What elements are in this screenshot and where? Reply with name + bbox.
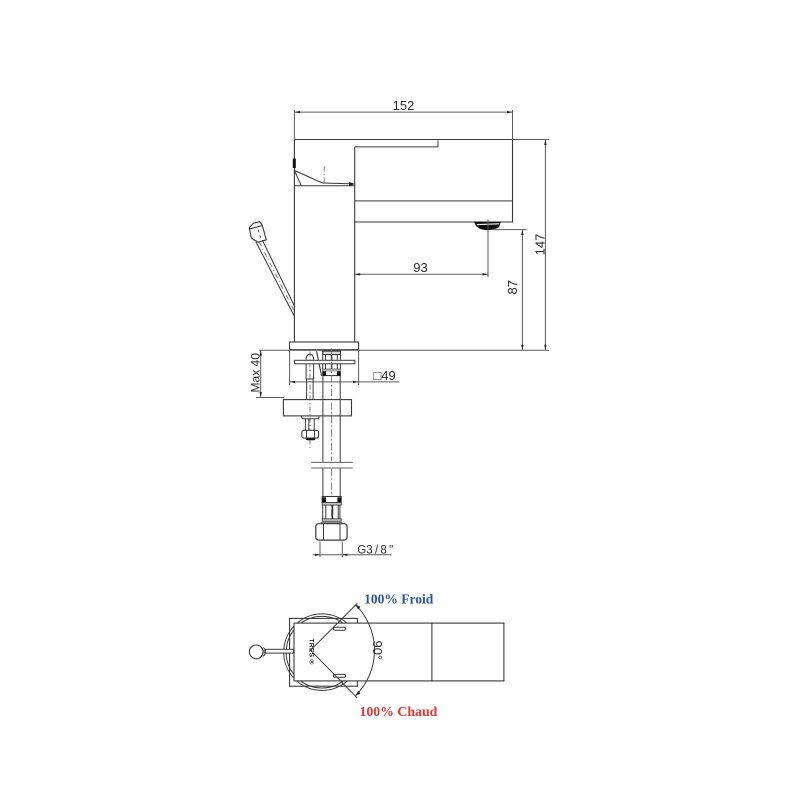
svg-text:□49: □49 xyxy=(373,368,395,383)
svg-text:147: 147 xyxy=(532,234,547,256)
svg-text:100% Froid: 100% Froid xyxy=(364,591,434,606)
svg-text:G3 / 8 ": G3 / 8 " xyxy=(357,544,393,556)
svg-text:90°: 90° xyxy=(370,640,385,660)
svg-text:93: 93 xyxy=(413,260,427,275)
svg-text:Max 40: Max 40 xyxy=(249,353,263,393)
svg-text:87: 87 xyxy=(505,280,520,294)
svg-text:152: 152 xyxy=(393,98,415,113)
svg-text:100% Chaud: 100% Chaud xyxy=(359,704,437,719)
